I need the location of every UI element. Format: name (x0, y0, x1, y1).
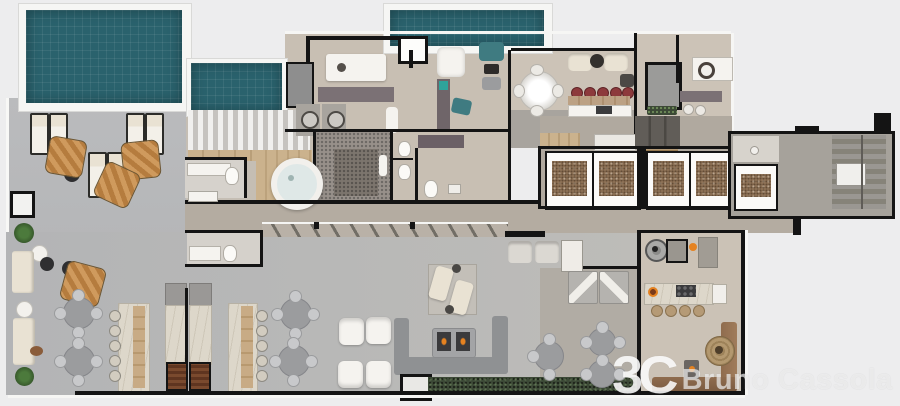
armchair-cream (604, 53, 628, 71)
wall (185, 230, 263, 233)
elevator-cab-floor (552, 161, 587, 196)
hanging-chair (301, 111, 319, 129)
kitchen-island-top (568, 96, 630, 105)
potted-plant (14, 223, 34, 243)
armchair-cream (568, 53, 592, 71)
round-grill-center (652, 246, 658, 252)
wall (185, 264, 263, 267)
terrace-cabinet (561, 240, 583, 272)
fire-pit-burner (437, 332, 451, 351)
kids-pool (191, 63, 282, 112)
service-elevator-cab (734, 164, 778, 211)
buffet-island-wood (241, 306, 253, 388)
chair (72, 337, 85, 350)
sectional-sofa-arm (492, 316, 508, 374)
potted-plant (15, 367, 34, 386)
wall (511, 48, 637, 51)
lounge-armchair-white (366, 317, 391, 344)
toilet (225, 167, 239, 185)
stool (109, 355, 121, 367)
lounge-armchair-gray (508, 241, 532, 263)
grill-cabinet-gray (165, 283, 187, 307)
wall (637, 230, 641, 395)
chair (54, 307, 67, 320)
corridor-bench (188, 191, 218, 202)
wc-sink (448, 184, 461, 194)
chair (90, 307, 103, 320)
wall (393, 158, 413, 160)
hot-tub-jet (288, 175, 294, 181)
cooktop (596, 106, 612, 114)
wall (260, 230, 263, 267)
paella-pan (648, 287, 658, 297)
chair (72, 289, 85, 302)
stool (109, 310, 121, 322)
dining-chair (530, 64, 544, 76)
planter-post (410, 222, 415, 229)
lounge-armchair-white (339, 318, 364, 345)
daybed-side-table (452, 264, 461, 273)
massage-bed-headrest (337, 63, 346, 72)
chair (305, 355, 318, 368)
chair (289, 290, 302, 303)
daybed-side-table (445, 305, 454, 314)
rattan-table-center (715, 346, 723, 354)
hanging-chair (327, 111, 345, 129)
elevator-cab (592, 151, 641, 210)
wall (874, 113, 891, 134)
dining-chair (513, 84, 525, 98)
lounge-armchair-white (338, 361, 363, 388)
elevator-cab-floor (599, 161, 634, 196)
wall (741, 230, 745, 395)
kitchen-stool (665, 305, 677, 317)
wall (409, 50, 413, 68)
sauna-bench (334, 149, 378, 196)
stair-shaft (635, 116, 680, 149)
chair (580, 368, 593, 381)
sun-lounger (30, 113, 49, 155)
stool (256, 325, 268, 337)
south-facade-trim (8, 395, 745, 398)
lounge-armchair-gray (535, 241, 559, 263)
planter-post (314, 222, 319, 229)
toilet (398, 164, 411, 180)
wall (676, 35, 679, 83)
chair (307, 308, 320, 321)
teal-display (439, 81, 448, 90)
toilet (223, 245, 237, 262)
brown-sofa-base (652, 377, 737, 392)
massage-counter (318, 87, 394, 102)
coffee-table-white (16, 301, 33, 318)
wall (306, 36, 412, 40)
counter-divider-wall (185, 288, 188, 364)
charcoal-grill (189, 362, 211, 391)
terrace-daybed (599, 271, 629, 304)
grill-counter (165, 305, 187, 365)
massage-bed (326, 54, 386, 81)
wall (390, 132, 393, 203)
side-table-brown (30, 346, 43, 356)
elevator-cab-floor (653, 161, 684, 196)
side-table-black (484, 64, 499, 74)
buffet-island-wood (133, 306, 145, 388)
stool (109, 340, 121, 352)
stool (256, 370, 268, 382)
dining-chair (530, 105, 544, 117)
armchair-dark (620, 74, 634, 87)
island-cooktop (676, 285, 696, 297)
kitchen-stool (679, 305, 691, 317)
grill-counter (189, 305, 212, 365)
copper-pot (689, 243, 697, 251)
chair (596, 321, 609, 334)
island-end-cabinet (712, 284, 727, 304)
stair-divider (861, 135, 863, 209)
chair (54, 355, 67, 368)
kitchen-stool (651, 305, 663, 317)
chair (527, 350, 540, 363)
chair (287, 374, 300, 387)
chair (269, 355, 282, 368)
main-pool (26, 10, 182, 103)
stool (256, 340, 268, 352)
elevator-cab (545, 151, 594, 210)
orange-decor (689, 366, 695, 372)
armchair-teal (479, 42, 504, 61)
washer (698, 62, 715, 79)
stool (109, 370, 121, 382)
chair (543, 368, 556, 381)
elevator-cab-floor (741, 174, 771, 197)
parasol (44, 135, 88, 179)
wall (415, 148, 418, 203)
chair (72, 374, 85, 387)
wall (244, 157, 247, 198)
coffee-table-black (590, 54, 604, 68)
wall (508, 50, 511, 203)
coffee-table-black (40, 257, 54, 271)
wall (637, 230, 745, 233)
elevator-cab-floor (696, 161, 727, 196)
laundry-basket (683, 104, 694, 115)
wall (583, 266, 637, 269)
fire-pit-burner (456, 332, 470, 351)
wall (538, 146, 734, 149)
duct-shaft (398, 36, 428, 64)
wall (795, 126, 819, 133)
utility-counter-dark (680, 91, 722, 102)
chair (580, 336, 593, 349)
terrace-daybed (568, 271, 598, 304)
storage-room (286, 62, 314, 108)
lounge-sofa (12, 251, 34, 293)
planter-box (647, 106, 677, 115)
chair (596, 354, 609, 367)
wall (185, 200, 540, 204)
north-facade-trim (285, 31, 731, 34)
elevator-cab (646, 151, 691, 210)
stool (256, 355, 268, 367)
lounge-armchair-white (366, 361, 391, 388)
toilet (424, 180, 438, 198)
stool (109, 325, 121, 337)
pedicure-chair (437, 47, 465, 77)
chair (613, 368, 626, 381)
corridor-planter (262, 222, 508, 237)
stool (256, 310, 268, 322)
vanity-counter (189, 246, 221, 261)
oven-box (666, 239, 688, 263)
floorplan-canvas: 3C Bruno Cassola (0, 0, 900, 406)
lounge-sofa (13, 318, 35, 365)
sectional-sofa-base (394, 357, 508, 374)
chair (287, 337, 300, 350)
wall (505, 231, 545, 237)
kitchen-cabinet (698, 237, 718, 268)
chair (613, 336, 626, 349)
chair (90, 355, 103, 368)
laundry-basket (695, 105, 706, 116)
charcoal-grill (166, 362, 188, 391)
duct-box (10, 191, 35, 218)
dining-chair (552, 84, 564, 98)
wall (185, 157, 247, 160)
toilet (398, 141, 411, 157)
changing-bench (418, 135, 464, 148)
salon-chair (482, 77, 501, 90)
grill-cabinet-gray (189, 283, 212, 307)
wing-sink (750, 146, 759, 155)
core-divider-wall (637, 149, 646, 207)
sauna-towel (379, 155, 387, 176)
wall (538, 146, 541, 209)
chair (543, 333, 556, 346)
chair (271, 308, 284, 321)
kitchen-stool (693, 305, 705, 317)
